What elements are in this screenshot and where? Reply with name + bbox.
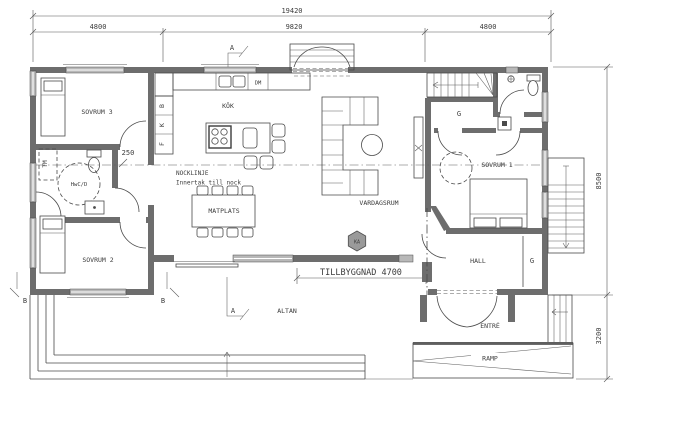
toilet [528, 81, 538, 96]
chair [197, 228, 208, 237]
label-wardrobe-upper: G [457, 110, 461, 118]
label-entry: ENTRÉ [480, 321, 500, 330]
sliding-door-panel [176, 264, 238, 267]
ka-badge: KA [348, 231, 365, 251]
toilet-tank [527, 75, 540, 81]
door-arc-hall [422, 234, 446, 258]
turning-circle [440, 152, 472, 184]
wall-living-east [425, 98, 431, 212]
section-b-right: B [161, 297, 165, 305]
floor-plan-drawing: 19420 4800 9820 4800 8500 3200 TILLBYGGN… [0, 0, 700, 438]
wall-stub [146, 217, 148, 223]
bed-sovrum3 [41, 78, 65, 136]
room-sovrum3: SOVRUM 3 [41, 78, 146, 147]
wall-gcloset-bottom [462, 128, 494, 133]
chair [227, 228, 238, 237]
wall-gcloset-stub [434, 128, 438, 133]
wall-sovrum1-stub [494, 128, 496, 133]
label-living: VARDAGSRUM [359, 199, 398, 207]
dim-mid: 9820 [286, 23, 303, 31]
section-b-left: B [23, 297, 27, 305]
entry: ENTRÉ [420, 289, 572, 343]
label-sovrum3: SOVRUM 3 [81, 108, 112, 116]
north-bay [290, 44, 354, 76]
toilet-tank [87, 150, 101, 157]
label-terrace: ALTAN [277, 307, 297, 315]
chair [212, 186, 223, 195]
kitchen: DM KÖK B K F [155, 73, 310, 169]
wall-sovrum1-hall [446, 228, 542, 234]
hall: HALL G [422, 234, 534, 287]
room-sovrum1: SOVRUM 1 [440, 131, 527, 228]
porch-wall-right [508, 295, 515, 322]
wall-south-extension-right [293, 255, 399, 262]
chair [227, 186, 238, 195]
chair [242, 228, 253, 237]
section-a-top: A [230, 44, 235, 52]
label-dishwasher: DM [255, 81, 262, 87]
wall-bedroom-block-upper [148, 73, 154, 165]
door-arc-bathroom [36, 192, 61, 217]
wall-bath-sovrum2 [62, 217, 120, 223]
label-washing-machine: TM [42, 160, 49, 168]
door-arc-entry-left [437, 296, 467, 327]
label-kitchen: KÖK [222, 101, 234, 110]
dim-total: 19420 [281, 7, 302, 15]
label-cabinet-b: B [158, 104, 166, 108]
g-closet-upper: G [438, 110, 462, 155]
door-arc-gcloset [438, 131, 462, 155]
kitchen-counter [173, 73, 310, 90]
dim-corridor: 250 [122, 149, 135, 157]
label-ramp: RAMP [482, 355, 498, 363]
label-bathroom: HwC/D [71, 182, 88, 188]
label-dining: MATPLATS [208, 207, 239, 215]
bed-sovrum2 [40, 216, 65, 273]
door-arc-sovrum3 [120, 121, 146, 147]
wall-diagonal [430, 206, 450, 231]
dim-depth-lower: 3200 [595, 328, 603, 345]
window-extension-small [399, 255, 413, 262]
living-room: VARDAGSRUM [322, 97, 423, 207]
chair [197, 186, 208, 195]
ridge-line: NOCKLINJE Innertak till nock [36, 165, 542, 187]
wc [498, 75, 540, 130]
door-arc-corridor [115, 188, 139, 212]
stove [209, 126, 231, 148]
room-bathroom: TM HwC/D [36, 149, 139, 217]
label-ridge: NOCKLINJE [176, 170, 209, 177]
island-sink [243, 128, 257, 148]
room-sovrum2: SOVRUM 2 [40, 216, 146, 273]
label-hall: HALL [470, 257, 486, 265]
cabinet-upper [155, 73, 173, 96]
label-ridge-note: Innertak till nock [176, 180, 241, 187]
terrace: ALTAN [30, 295, 413, 379]
fireplace [414, 117, 423, 178]
ramp-top-edge [413, 342, 573, 345]
label-badge: KA [354, 240, 360, 246]
chair [212, 228, 223, 237]
label-cabinet-k: K [158, 123, 166, 127]
wall-bath-corridor [112, 150, 118, 188]
stool [260, 156, 273, 169]
label-sovrum2: SOVRUM 2 [82, 256, 113, 264]
dim-right: 4800 [480, 23, 497, 31]
label-cabinet-f: F [158, 142, 166, 146]
wall-stair-bottom [427, 97, 493, 102]
east-exterior-stair [548, 158, 584, 253]
dim-left: 4800 [90, 23, 107, 31]
bed-sovrum1 [470, 179, 527, 228]
label-sovrum1: SOVRUM 1 [481, 161, 512, 169]
dining: MATPLATS [192, 186, 255, 237]
stool [244, 156, 257, 169]
stool [272, 140, 285, 153]
dim-depth-main: 8500 [595, 173, 603, 190]
coffee-table [362, 135, 383, 156]
door-arc-sovrum1 [496, 131, 520, 155]
stool [272, 124, 285, 137]
sink-basin-left [219, 76, 231, 87]
wall-bedroom-block-lower [148, 205, 154, 289]
wall-sovrum1-top [520, 128, 542, 133]
chair [242, 186, 253, 195]
door-arc-wc [500, 90, 524, 114]
section-a-bottom: A [231, 307, 236, 315]
door-arc-sovrum2 [120, 222, 146, 248]
porch-wall-left [420, 295, 427, 322]
dim-extension: TILLBYGGNAD 4700 [320, 268, 402, 278]
window-wc-north [506, 67, 518, 73]
sink-basin-right [233, 76, 245, 87]
floor-plan-canvas: 19420 4800 9820 4800 8500 3200 TILLBYGGN… [0, 0, 700, 438]
label-wardrobe-hall: G [530, 257, 534, 265]
interior-stair [427, 73, 497, 97]
ramp: RAMP [413, 342, 573, 378]
